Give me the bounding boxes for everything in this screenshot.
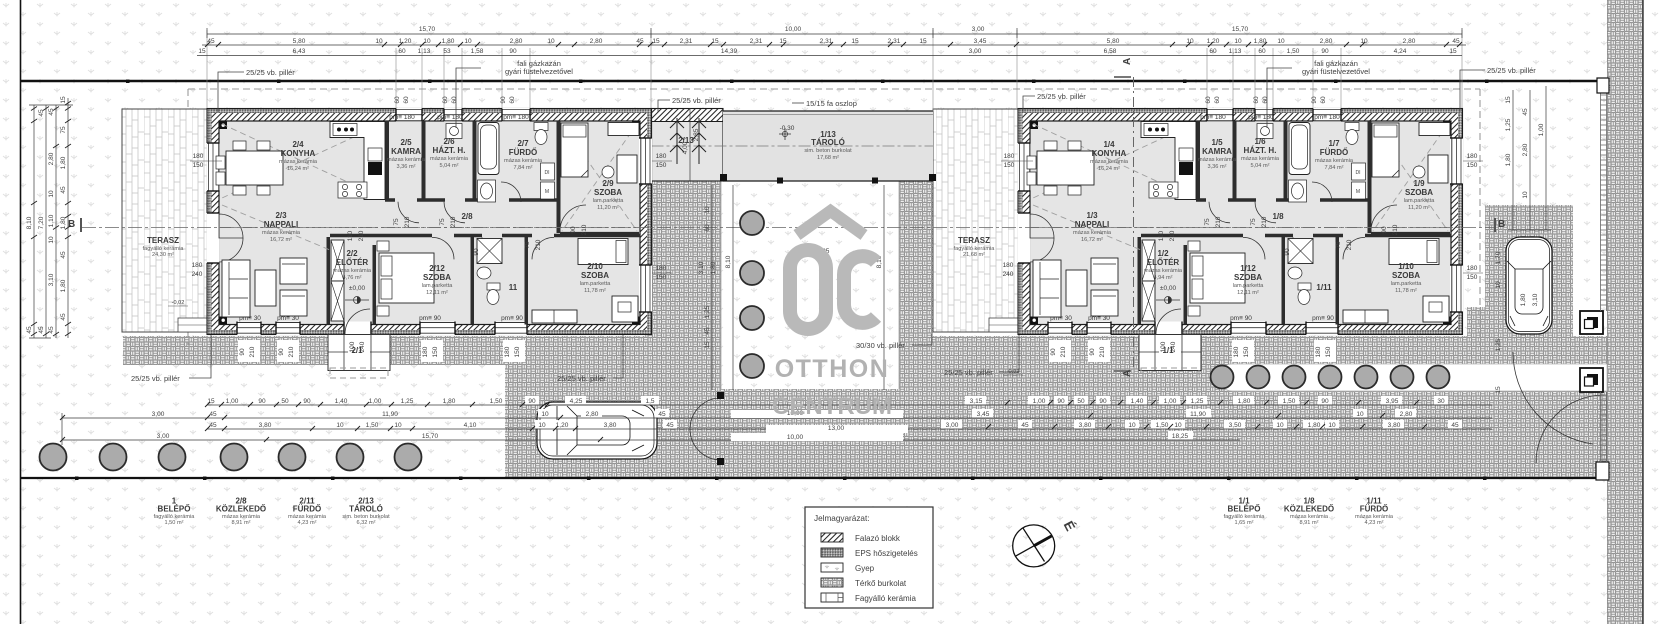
svg-text:2,80: 2,80 [1400, 411, 1413, 418]
svg-text:TERASZ: TERASZ [147, 236, 179, 245]
svg-text:HÁZT. H.: HÁZT. H. [1244, 146, 1277, 155]
svg-text:60: 60 [1214, 96, 1221, 104]
svg-text:2,80: 2,80 [1320, 38, 1333, 45]
svg-text:210: 210 [581, 224, 588, 235]
svg-text:pm≡ 90: pm≡ 90 [501, 315, 523, 322]
svg-text:10: 10 [48, 236, 55, 244]
svg-text:FÜRDŐ: FÜRDŐ [1360, 505, 1388, 514]
svg-text:15/15 fa oszlop: 15/15 fa oszlop [806, 99, 857, 108]
svg-text:75: 75 [1335, 241, 1342, 249]
svg-text:3,80: 3,80 [604, 422, 617, 429]
svg-text:1,00: 1,00 [226, 398, 239, 405]
svg-text:1/11: 1/11 [1316, 283, 1332, 292]
svg-text:1,20: 1,20 [556, 422, 569, 429]
svg-text:45: 45 [636, 38, 644, 45]
svg-text:210: 210 [450, 216, 457, 227]
svg-text:45: 45 [1021, 422, 1029, 429]
svg-text:lam.parketta: lam.parketta [1391, 281, 1423, 287]
svg-text:5,80: 5,80 [293, 38, 306, 45]
svg-text:1,5: 1,5 [645, 398, 654, 405]
svg-text:90: 90 [1099, 398, 1107, 405]
svg-text:1,13: 1,13 [1229, 48, 1242, 55]
svg-text:2/8: 2/8 [461, 212, 473, 221]
svg-text:150: 150 [193, 162, 204, 169]
svg-text:2/4: 2/4 [292, 140, 304, 149]
svg-text:1,00: 1,00 [1538, 123, 1545, 136]
svg-text:1,25: 1,25 [401, 398, 414, 405]
svg-text:NAPPALI: NAPPALI [1075, 220, 1110, 229]
svg-text:45: 45 [209, 411, 217, 418]
svg-text:gyári füstelvezetővel: gyári füstelvezetővel [1302, 67, 1370, 76]
svg-text:2,80: 2,80 [1403, 38, 1416, 45]
svg-text:6,32 m²: 6,32 m² [357, 520, 376, 526]
svg-text:CENTRUM: CENTRUM [772, 393, 892, 420]
svg-text:3,10: 3,10 [1532, 293, 1539, 306]
svg-text:10: 10 [1234, 38, 1242, 45]
svg-text:1,70: 1,70 [1495, 251, 1502, 264]
svg-text:4,10: 4,10 [464, 422, 477, 429]
svg-text:SZOBA: SZOBA [1392, 271, 1420, 280]
svg-text:-0,02: -0,02 [172, 300, 185, 306]
svg-text:mázas kerámia: mázas kerámia [1198, 157, 1237, 163]
svg-text:60: 60 [509, 96, 516, 104]
svg-text:2,80: 2,80 [590, 38, 603, 45]
svg-text:4,23 m²: 4,23 m² [1365, 520, 1384, 526]
svg-text:-0,30: -0,30 [780, 125, 795, 132]
svg-text:210: 210 [1261, 216, 1268, 227]
svg-text:3,00: 3,00 [152, 411, 165, 418]
svg-text:1/9: 1/9 [1413, 179, 1425, 188]
svg-text:75: 75 [1250, 218, 1257, 226]
svg-text:10: 10 [538, 422, 546, 429]
svg-text:4,24: 4,24 [1394, 48, 1407, 55]
svg-text:45: 45 [658, 411, 666, 418]
svg-text:4,25: 4,25 [570, 398, 583, 405]
svg-text:3,00: 3,00 [972, 26, 985, 33]
svg-text:2/12: 2/12 [429, 264, 445, 273]
svg-text:FÜRDŐ: FÜRDŐ [1320, 148, 1348, 157]
svg-text:3,95: 3,95 [1386, 398, 1399, 405]
svg-text:210: 210 [1099, 346, 1106, 357]
svg-text:12,11 m²: 12,11 m² [1237, 290, 1259, 296]
svg-text:90: 90 [1284, 248, 1291, 256]
svg-text:1,25: 1,25 [1191, 398, 1204, 405]
svg-text:10: 10 [1356, 411, 1364, 418]
svg-text:180: 180 [656, 153, 667, 160]
svg-text:mázas kerámia: mázas kerámia [430, 156, 469, 162]
svg-text:25/25 vb. pillér: 25/25 vb. pillér [944, 368, 993, 377]
svg-text:25/25 vb. pillér: 25/25 vb. pillér [1037, 92, 1086, 101]
svg-text:FÜRDŐ: FÜRDŐ [509, 148, 537, 157]
svg-text:mázas kerámia: mázas kerámia [504, 158, 543, 164]
svg-text:2/2: 2/2 [346, 249, 358, 258]
svg-text:3,80: 3,80 [1388, 422, 1401, 429]
svg-text:KONYHA: KONYHA [1092, 149, 1127, 158]
svg-text:1,50: 1,50 [1287, 48, 1300, 55]
svg-text:11,20 m²: 11,20 m² [597, 205, 619, 211]
svg-text:45: 45 [1452, 38, 1460, 45]
svg-text:210: 210 [1060, 346, 1067, 357]
svg-text:pm≡ 30: pm≡ 30 [239, 315, 261, 322]
svg-text:150: 150 [1467, 274, 1478, 281]
svg-text:11,78 m²: 11,78 m² [584, 288, 606, 294]
svg-text:10: 10 [704, 206, 711, 214]
svg-text:11,90: 11,90 [1190, 411, 1206, 418]
svg-text:180: 180 [1004, 153, 1015, 160]
svg-text:1,50 m²: 1,50 m² [165, 520, 184, 526]
svg-text:60: 60 [1320, 96, 1327, 104]
svg-text:13,00: 13,00 [828, 425, 845, 432]
svg-text:10: 10 [1328, 422, 1336, 429]
svg-text:5,04 m²: 5,04 m² [1251, 163, 1270, 169]
svg-text:1/4: 1/4 [1103, 140, 1115, 149]
svg-text:pm≡ 30: pm≡ 30 [1088, 315, 1110, 322]
svg-text:1,50: 1,50 [490, 398, 503, 405]
svg-text:gyári füstelvezetővel: gyári füstelvezetővel [505, 67, 573, 76]
svg-text:8,91 m²: 8,91 m² [232, 520, 251, 526]
svg-text:180: 180 [1467, 265, 1478, 272]
svg-text:2,31: 2,31 [680, 38, 693, 45]
svg-text:pm≡ 180: pm≡ 180 [1314, 114, 1340, 121]
svg-text:110: 110 [347, 230, 354, 241]
svg-text:210: 210 [249, 346, 256, 357]
svg-text:18,25: 18,25 [1172, 433, 1189, 440]
svg-text:16,24 m²: 16,24 m² [1098, 166, 1120, 172]
svg-text:pm≡ 180: pm≡ 180 [1200, 114, 1226, 121]
svg-text:mázas kerámia: mázas kerámia [333, 268, 372, 274]
svg-text:1,50: 1,50 [1156, 422, 1169, 429]
svg-text:ELŐTÉR: ELŐTÉR [1147, 258, 1180, 267]
svg-text:2,31: 2,31 [820, 38, 833, 45]
svg-text:3,15: 3,15 [970, 398, 983, 405]
svg-text:180: 180 [1003, 262, 1014, 269]
svg-text:45: 45 [704, 327, 711, 335]
svg-text:90: 90 [1311, 96, 1318, 104]
svg-text:45: 45 [209, 422, 217, 429]
svg-text:60: 60 [704, 224, 711, 232]
svg-text:10,00: 10,00 [787, 434, 804, 441]
svg-text:KÖZLEKEDŐ: KÖZLEKEDŐ [1284, 505, 1334, 514]
svg-text:5,04 m²: 5,04 m² [440, 163, 459, 169]
svg-text:2,80: 2,80 [510, 38, 523, 45]
svg-text:2,85: 2,85 [693, 128, 700, 141]
svg-text:1,58: 1,58 [471, 48, 484, 55]
svg-text:7,84 m²: 7,84 m² [514, 165, 533, 171]
svg-text:1,65 m²: 1,65 m² [1235, 520, 1254, 526]
svg-text:45: 45 [60, 313, 67, 321]
svg-text:90: 90 [258, 398, 266, 405]
svg-text:10: 10 [394, 422, 402, 429]
svg-text:240: 240 [1003, 271, 1014, 278]
svg-text:60: 60 [442, 96, 449, 104]
svg-text:4,23 m²: 4,23 m² [298, 520, 317, 526]
svg-text:30: 30 [1437, 398, 1445, 405]
svg-text:SZOBA: SZOBA [1405, 188, 1433, 197]
svg-text:±0,00: ±0,00 [349, 285, 366, 292]
svg-text:Jelmagyarázat:: Jelmagyarázat: [814, 514, 870, 523]
svg-text:1,80: 1,80 [1238, 398, 1251, 405]
svg-text:2/1: 2/1 [351, 346, 363, 355]
svg-text:1,10: 1,10 [48, 214, 55, 227]
svg-text:60: 60 [403, 96, 410, 104]
svg-text:1/7: 1/7 [1328, 139, 1340, 148]
svg-text:2/3: 2/3 [275, 211, 287, 220]
svg-text:3,00: 3,00 [946, 422, 959, 429]
svg-text:45: 45 [48, 108, 55, 116]
svg-text:15,70: 15,70 [422, 433, 439, 440]
svg-text:TÁROLÓ: TÁROLÓ [349, 505, 383, 514]
svg-text:SZOBA: SZOBA [581, 271, 609, 280]
svg-text:210: 210 [358, 230, 365, 241]
svg-text:3,00: 3,00 [969, 48, 982, 55]
svg-text:B: B [1498, 219, 1505, 230]
svg-text:150: 150 [1004, 162, 1015, 169]
svg-text:3,50: 3,50 [1229, 422, 1242, 429]
svg-text:pm≡ 90: pm≡ 90 [1230, 315, 1252, 322]
svg-text:3,45: 3,45 [974, 38, 987, 45]
svg-text:A: A [1122, 370, 1133, 377]
svg-text:1,80: 1,80 [1520, 293, 1527, 306]
svg-text:4,94 m²: 4,94 m² [1154, 275, 1173, 281]
svg-text:mázas kerámia: mázas kerámia [1144, 268, 1183, 274]
svg-text:150: 150 [1467, 162, 1478, 169]
svg-text:1/1: 1/1 [1162, 346, 1174, 355]
svg-text:11: 11 [509, 283, 518, 292]
svg-text:180: 180 [1233, 346, 1240, 357]
svg-text:1/3: 1/3 [1086, 211, 1098, 220]
svg-text:1,00: 1,00 [1164, 398, 1177, 405]
svg-text:5,80: 5,80 [1107, 38, 1120, 45]
svg-text:75: 75 [524, 241, 531, 249]
svg-text:210: 210 [1346, 239, 1353, 250]
svg-text:1,20: 1,20 [399, 38, 412, 45]
svg-text:B: B [68, 219, 75, 230]
svg-text:16,24 m²: 16,24 m² [287, 166, 309, 172]
svg-text:3,80: 3,80 [259, 422, 272, 429]
svg-text:90: 90 [1321, 398, 1329, 405]
svg-text:mázas kerámia: mázas kerámia [279, 159, 318, 165]
svg-text:60: 60 [1209, 48, 1217, 55]
svg-text:150: 150 [1243, 346, 1250, 357]
svg-text:1/2: 1/2 [1157, 249, 1169, 258]
svg-text:10: 10 [547, 38, 555, 45]
svg-text:mázas kerámia: mázas kerámia [1315, 158, 1354, 164]
svg-text:12,11 m²: 12,11 m² [426, 290, 448, 296]
svg-text:180: 180 [1315, 346, 1322, 357]
svg-text:15: 15 [198, 48, 206, 55]
svg-text:25/25 vb. pillér: 25/25 vb. pillér [557, 374, 606, 383]
svg-text:mázas kerámia: mázas kerámia [262, 230, 301, 236]
svg-text:10: 10 [1186, 38, 1194, 45]
svg-text:SZOBA: SZOBA [423, 273, 451, 282]
svg-text:3,10: 3,10 [698, 261, 705, 274]
svg-text:25/25 vb. pillér: 25/25 vb. pillér [672, 96, 721, 105]
svg-text:EPS hőszigetelés: EPS hőszigetelés [855, 549, 918, 558]
svg-text:Falazó blokk: Falazó blokk [855, 534, 901, 543]
svg-text:1,25: 1,25 [704, 305, 711, 318]
svg-text:KAMRA: KAMRA [391, 147, 421, 156]
svg-text:3,00: 3,00 [157, 433, 170, 440]
svg-text:8,91 m²: 8,91 m² [1300, 520, 1319, 526]
svg-text:2/10: 2/10 [587, 262, 603, 271]
svg-text:6,58: 6,58 [1104, 48, 1117, 55]
svg-text:Térkő burkolat: Térkő burkolat [855, 579, 907, 588]
svg-text:90: 90 [1050, 348, 1057, 356]
svg-text:1,80: 1,80 [710, 261, 717, 274]
svg-text:A: A [1122, 58, 1133, 65]
svg-text:15: 15 [919, 38, 927, 45]
svg-text:10: 10 [336, 422, 344, 429]
svg-text:1,00: 1,00 [369, 398, 382, 405]
svg-text:180: 180 [422, 346, 429, 357]
svg-text:17,68 m²: 17,68 m² [817, 155, 839, 161]
svg-text:mázas kerámia: mázas kerámia [1073, 230, 1112, 236]
svg-text:30/30 vb. pillér: 30/30 vb. pillér [856, 341, 905, 350]
svg-text:90: 90 [509, 48, 517, 55]
svg-text:90: 90 [239, 348, 246, 356]
svg-text:3,80: 3,80 [1079, 422, 1092, 429]
svg-text:90: 90 [473, 248, 480, 256]
svg-text:15: 15 [1449, 48, 1457, 55]
svg-text:180: 180 [504, 346, 511, 357]
svg-text:10: 10 [1360, 38, 1368, 45]
svg-text:10: 10 [1174, 422, 1182, 429]
svg-text:16,72 m²: 16,72 m² [270, 237, 292, 243]
svg-text:25/25 vb. pillér: 25/25 vb. pillér [246, 68, 295, 77]
svg-text:3,36 m²: 3,36 m² [1208, 164, 1227, 170]
svg-text:TÁROLÓ: TÁROLÓ [811, 138, 845, 147]
svg-text:sim. beton burkolat: sim. beton burkolat [804, 148, 852, 154]
svg-text:2/5: 2/5 [400, 138, 412, 147]
svg-text:1/10: 1/10 [1398, 262, 1414, 271]
svg-text:60: 60 [451, 96, 458, 104]
svg-text:KAMRA: KAMRA [1202, 147, 1232, 156]
svg-text:lam.parketta: lam.parketta [593, 198, 625, 204]
svg-text:2,80: 2,80 [48, 152, 55, 165]
svg-text:pm≡ 180: pm≡ 180 [503, 114, 529, 121]
svg-text:Fagyálló kerámia: Fagyálló kerámia [855, 594, 916, 603]
svg-text:90: 90 [1381, 226, 1388, 234]
svg-text:90: 90 [570, 226, 577, 234]
svg-text:10: 10 [1128, 422, 1136, 429]
svg-text:2,80: 2,80 [1522, 143, 1529, 156]
svg-text:15: 15 [652, 38, 660, 45]
svg-text:53: 53 [443, 48, 451, 55]
svg-text:60: 60 [1262, 96, 1269, 104]
svg-text:pm≡ 30: pm≡ 30 [277, 315, 299, 322]
svg-text:210: 210 [1392, 224, 1399, 235]
svg-text:210: 210 [1215, 216, 1222, 227]
svg-text:45: 45 [60, 186, 67, 194]
svg-text:10: 10 [48, 190, 55, 198]
svg-text:SZOBA: SZOBA [1234, 273, 1262, 282]
svg-text:45: 45 [1451, 422, 1459, 429]
svg-text:2/6: 2/6 [443, 137, 455, 146]
svg-text:ELŐTÉR: ELŐTÉR [336, 258, 369, 267]
svg-text:90: 90 [528, 398, 536, 405]
svg-text:2/7: 2/7 [517, 139, 529, 148]
svg-text:1,25: 1,25 [1495, 338, 1502, 351]
svg-text:lam.parketta: lam.parketta [580, 281, 612, 287]
svg-text:1,80: 1,80 [60, 279, 67, 292]
svg-text:1,80: 1,80 [1308, 422, 1321, 429]
svg-text:pm≡ 90: pm≡ 90 [419, 315, 441, 322]
svg-text:BELÉPŐ: BELÉPŐ [1228, 505, 1261, 514]
svg-text:11,90: 11,90 [382, 411, 398, 418]
svg-text:10: 10 [423, 38, 431, 45]
svg-text:KONYHA: KONYHA [281, 149, 316, 158]
svg-text:150: 150 [656, 162, 667, 169]
svg-text:60: 60 [398, 48, 406, 55]
svg-text:1,25: 1,25 [1505, 118, 1512, 131]
svg-text:OTTHON: OTTHON [775, 355, 890, 383]
svg-text:1/12: 1/12 [1240, 264, 1256, 273]
svg-text:15: 15 [1505, 96, 1512, 104]
svg-text:90: 90 [1057, 398, 1065, 405]
svg-text:7,84 m²: 7,84 m² [1325, 165, 1344, 171]
svg-text:90: 90 [303, 398, 311, 405]
svg-text:25/25 vb. pillér: 25/25 vb. pillér [1487, 66, 1536, 75]
svg-text:75: 75 [439, 218, 446, 226]
svg-text:15: 15 [851, 38, 859, 45]
svg-text:pm≡ 180: pm≡ 180 [389, 114, 415, 121]
svg-text:1/5: 1/5 [1211, 138, 1223, 147]
svg-text:8,10: 8,10 [26, 216, 33, 229]
svg-text:1/6: 1/6 [1254, 137, 1266, 146]
svg-text:1,80: 1,80 [1505, 153, 1512, 166]
svg-text:SZOBA: SZOBA [594, 188, 622, 197]
svg-text:4,76 m²: 4,76 m² [343, 275, 362, 281]
svg-text:1/8: 1/8 [1272, 212, 1284, 221]
svg-text:15: 15 [711, 38, 719, 45]
svg-text:pm≡ 180: pm≡ 180 [1248, 114, 1274, 121]
svg-text:10,00: 10,00 [785, 26, 802, 33]
svg-text:mázas kerámia: mázas kerámia [1090, 159, 1129, 165]
svg-text:90: 90 [1089, 348, 1096, 356]
svg-text:2,31: 2,31 [750, 38, 763, 45]
svg-text:60: 60 [1253, 96, 1260, 104]
svg-text:10: 10 [1277, 38, 1285, 45]
svg-text:11,20 m²: 11,20 m² [1408, 205, 1430, 211]
svg-text:pm≡ 180: pm≡ 180 [437, 114, 463, 121]
svg-text:1,00: 1,00 [1033, 398, 1046, 405]
svg-text:NAPPALI: NAPPALI [264, 220, 299, 229]
svg-text:60: 60 [1258, 48, 1266, 55]
svg-text:15,70: 15,70 [419, 26, 436, 33]
svg-text:150: 150 [432, 346, 439, 357]
svg-text:lam.parketta: lam.parketta [1233, 283, 1265, 289]
svg-text:45: 45 [26, 326, 33, 334]
svg-text:240: 240 [192, 271, 203, 278]
svg-text:150: 150 [656, 274, 667, 281]
svg-text:45: 45 [207, 38, 215, 45]
svg-text:16,72 m²: 16,72 m² [1081, 237, 1103, 243]
svg-text:BELÉPŐ: BELÉPŐ [158, 505, 191, 514]
svg-text:180: 180 [656, 265, 667, 272]
svg-text:1,80: 1,80 [1254, 38, 1267, 45]
svg-text:1,13: 1,13 [418, 48, 431, 55]
svg-text:45: 45 [666, 422, 674, 429]
svg-text:25/25 vb. pillér: 25/25 vb. pillér [131, 374, 180, 383]
svg-text:3,10: 3,10 [48, 273, 55, 286]
svg-text:60: 60 [1205, 96, 1212, 104]
svg-text:7,20: 7,20 [38, 216, 45, 229]
svg-text:10: 10 [464, 38, 472, 45]
svg-text:KÖZLEKEDŐ: KÖZLEKEDŐ [216, 505, 266, 514]
svg-text:TERASZ: TERASZ [958, 236, 990, 245]
svg-text:1,50: 1,50 [366, 422, 379, 429]
svg-text:lam.parketta: lam.parketta [422, 283, 454, 289]
